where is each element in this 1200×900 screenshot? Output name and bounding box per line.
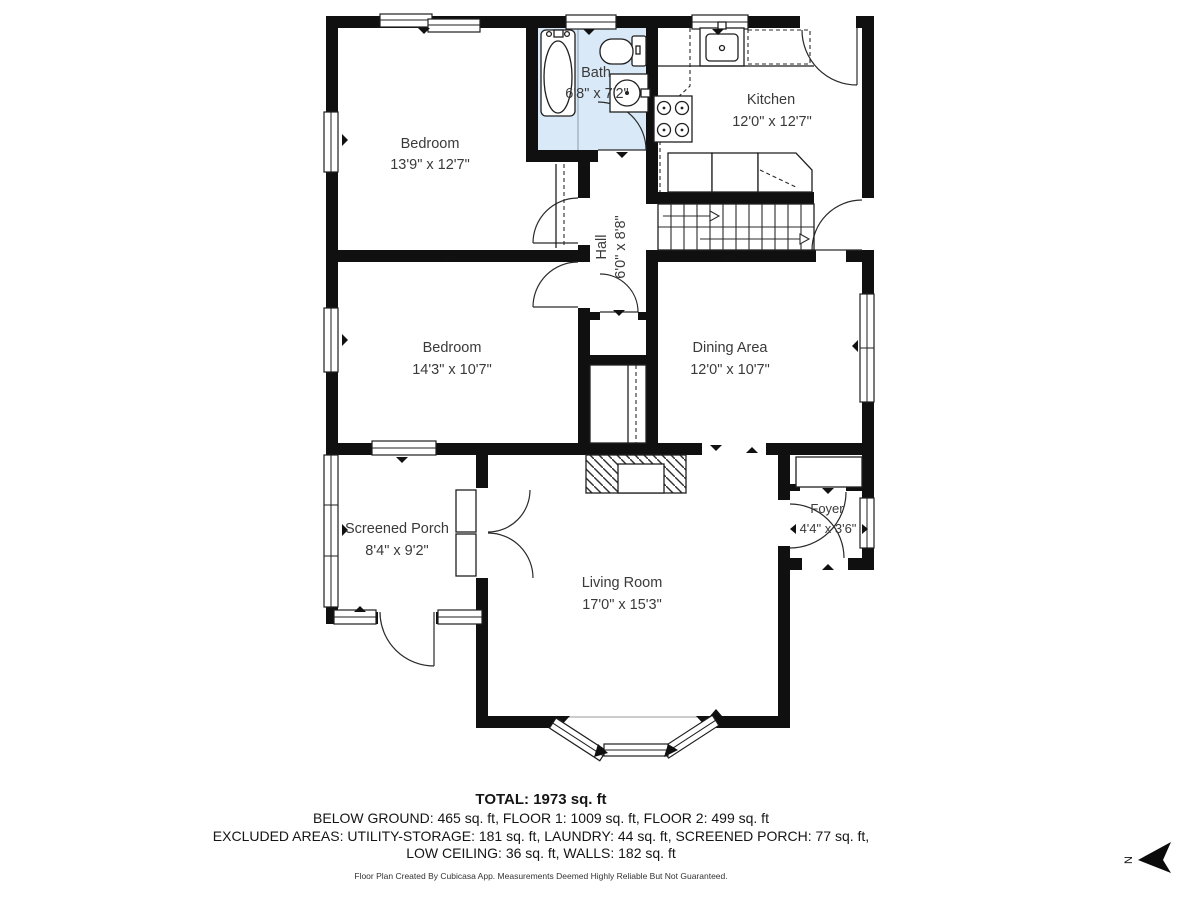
window [428,19,480,32]
room-label-dining-name: Dining Area [693,340,769,356]
room-label-hall-dims: 6'0" x 8'8" [613,215,629,278]
room-label-bedroom2-dims: 14'3" x 10'7" [412,362,492,378]
stove-icon [654,96,692,142]
summary-line2: EXCLUDED AREAS: UTILITY-STORAGE: 181 sq.… [213,828,869,844]
door-swing [812,200,862,250]
window [438,610,482,624]
room-label-foyer-name: Foyer [810,501,844,516]
room-label-porch-name: Screened Porch [345,521,449,537]
stairs-direction-arrow [700,234,809,244]
toilet-icon [600,36,646,66]
room-label-dining-dims: 12'0" x 10'7" [690,362,770,378]
summary-line1: BELOW GROUND: 465 sq. ft, FLOOR 1: 1009 … [313,810,769,826]
room-label-foyer-dims: 4'4" x 3'6" [800,521,857,536]
summary-block: TOTAL: 1973 sq. ft BELOW GROUND: 465 sq.… [213,791,869,881]
room-label-hall-name: Hall [594,235,610,260]
room-label-living-dims: 17'0" x 15'3" [582,597,662,613]
door-swing [802,28,857,85]
room-label-bath-dims: 6'8" x 7'2" [565,86,628,102]
dishwasher-icon [748,30,810,64]
chimney [590,365,646,443]
room-label-living-name: Living Room [582,575,663,591]
entry-stoop [796,457,862,487]
room-label-bedroom1-name: Bedroom [401,136,460,152]
window [860,498,874,548]
kitchen-sink-icon [700,22,744,66]
room-label-bedroom1-dims: 13'9" x 12'7" [390,157,470,173]
window [324,308,338,372]
summary-line3: LOW CEILING: 36 sq. ft, WALLS: 182 sq. f… [406,845,676,861]
window [372,441,436,455]
floor-plan-page: Bedroom 13'9" x 12'7" Bath 6'8" x 7'2" K… [0,0,1200,900]
compass-label: N [1123,856,1135,864]
window [566,15,616,29]
room-label-bath-name: Bath [581,65,611,81]
french-doors [456,490,533,578]
room-label-kitchen-name: Kitchen [747,92,795,108]
room-label-porch-dims: 8'4" x 9'2" [365,543,428,559]
kitchen-counter-icon [668,153,812,192]
closet-under-bath [556,164,564,248]
bathtub-icon [541,30,575,116]
window [334,610,376,624]
summary-disclaimer: Floor Plan Created By Cubicasa App. Meas… [354,871,727,881]
door-swing [600,274,638,312]
summary-total: TOTAL: 1973 sq. ft [475,791,606,808]
floor-plan-canvas: Bedroom 13'9" x 12'7" Bath 6'8" x 7'2" K… [0,0,1200,900]
window [380,14,432,27]
fireplace-icon [586,455,686,493]
window [860,294,874,402]
door-swing [533,262,578,307]
room-label-bedroom2-name: Bedroom [423,340,482,356]
north-arrow-icon: N [1123,842,1171,873]
window [324,112,338,172]
window [324,455,338,607]
stairs-icon [658,204,814,250]
room-label-kitchen-dims: 12'0" x 12'7" [732,114,812,130]
